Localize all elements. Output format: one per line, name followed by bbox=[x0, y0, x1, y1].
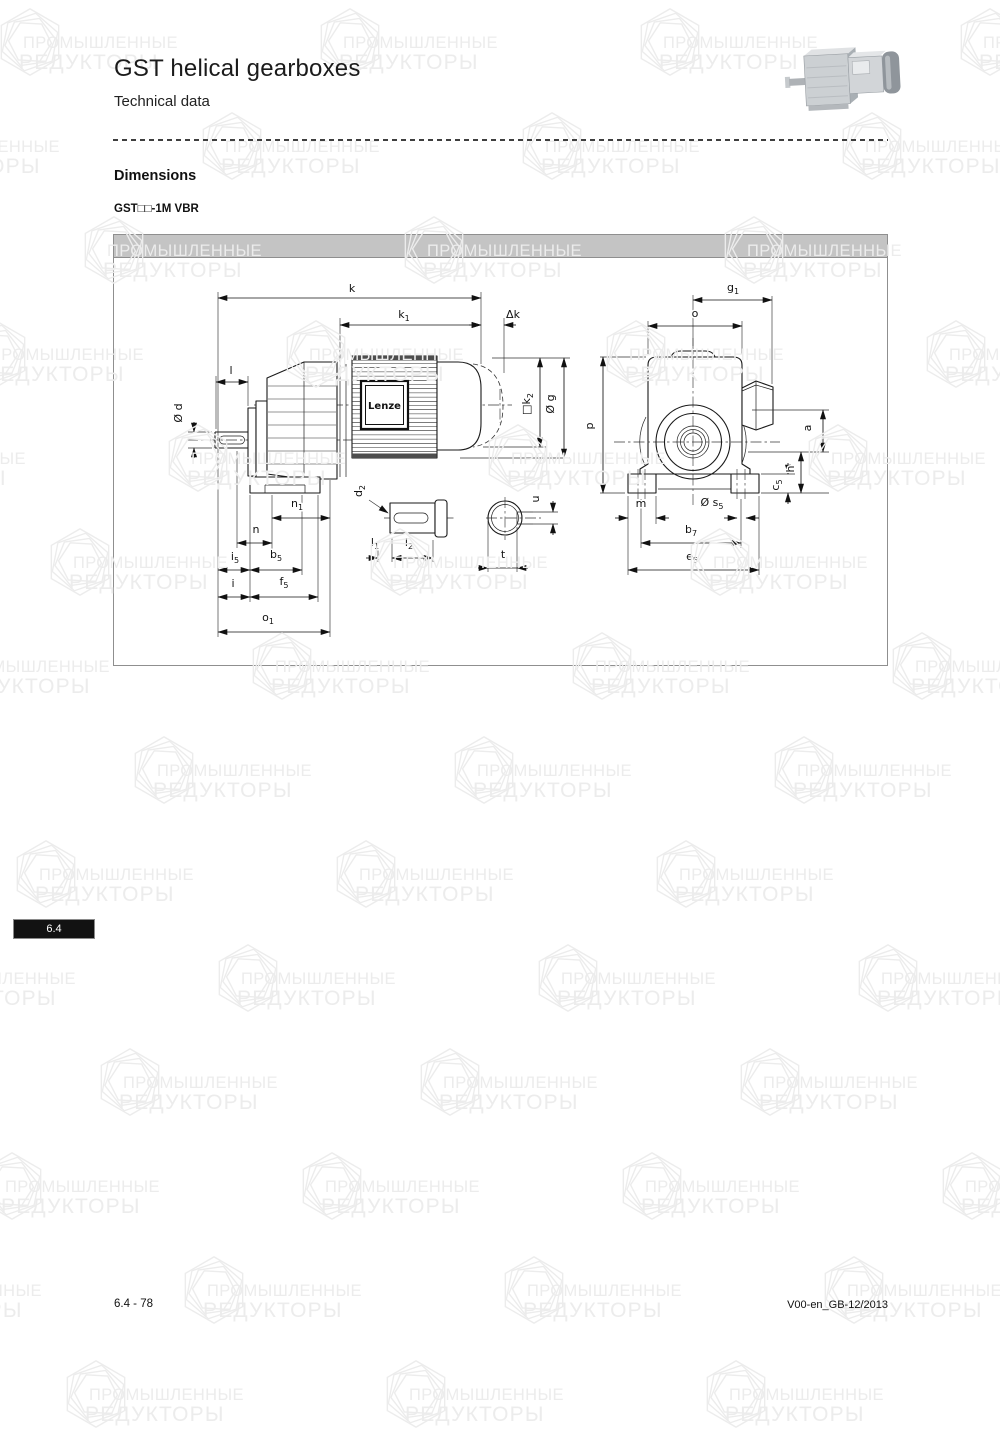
page: { "page": { "title": "GST helical gearbo… bbox=[0, 0, 1000, 1395]
dim-label-p: p bbox=[583, 422, 596, 429]
key-detail bbox=[369, 500, 455, 537]
dim-label-t: t bbox=[501, 548, 506, 561]
dim-label-k: k bbox=[349, 282, 356, 295]
dim-label-o1: o1 bbox=[262, 611, 274, 626]
dim-label-l: l bbox=[229, 364, 232, 377]
dim-label-k2: □k2 bbox=[520, 393, 535, 415]
dim-label-g: Ø g bbox=[544, 394, 557, 413]
gearbox-housing bbox=[267, 362, 337, 479]
front-housing bbox=[640, 357, 750, 474]
dim-label-f5: f5 bbox=[280, 575, 289, 590]
watermark-text-line2: РЕДУКТОРЫ bbox=[85, 1403, 225, 1427]
dim-label-o: o bbox=[692, 307, 699, 320]
d2-leader-line bbox=[369, 500, 388, 513]
technical-drawing: Lenze bbox=[113, 234, 888, 666]
dim-label-i: i bbox=[231, 577, 234, 590]
product-photo bbox=[783, 38, 928, 120]
shaft bbox=[789, 78, 807, 86]
flange-plate-1 bbox=[248, 408, 256, 476]
dim-label-h: h bbox=[784, 465, 797, 472]
foot-left bbox=[628, 474, 656, 493]
fan-cover bbox=[437, 362, 481, 450]
dim-label-n: n bbox=[253, 523, 260, 536]
shaft-collar bbox=[435, 500, 447, 537]
dim-label-u: u bbox=[529, 496, 542, 503]
motor-bottom-band bbox=[352, 454, 437, 459]
dim-label-n1: n1 bbox=[291, 497, 303, 512]
dim-label-l2: l2 bbox=[405, 536, 413, 551]
side-view: Lenze bbox=[187, 356, 512, 493]
flange-plate-2 bbox=[256, 401, 267, 483]
front-view bbox=[614, 338, 780, 505]
terminal-box-photo bbox=[852, 61, 870, 75]
dim-label-a: a bbox=[801, 425, 814, 432]
motor-top-band bbox=[352, 356, 437, 361]
watermark-text-line2: РЕДУКТОРЫ bbox=[725, 1403, 865, 1427]
dim-label-b5: b5 bbox=[270, 548, 282, 563]
dim-label-k1: k1 bbox=[398, 308, 409, 323]
dim-label-c5: c5 bbox=[769, 479, 784, 490]
dim-label-b7: b7 bbox=[685, 523, 697, 538]
brand-label: Lenze bbox=[368, 401, 401, 412]
dim-label-delta-k: Δk bbox=[506, 308, 521, 321]
dim-label-d2: d2 bbox=[352, 485, 367, 497]
gearbox-render bbox=[784, 45, 902, 112]
dim-label-g1: g1 bbox=[727, 281, 739, 296]
dim-label-m: m bbox=[636, 497, 647, 510]
motor-adapter bbox=[340, 364, 346, 477]
art-layer: Lenze bbox=[0, 0, 1000, 1395]
dim-label-l1: l1 bbox=[371, 536, 379, 551]
watermark-text-line2: РЕДУКТОРЫ bbox=[405, 1403, 545, 1427]
dim-label-s5: Ø s5 bbox=[701, 496, 724, 511]
dim-label-d: Ø d bbox=[172, 403, 185, 422]
dim-label-i5: i5 bbox=[231, 550, 239, 565]
dim-label-e5: e5 bbox=[686, 550, 698, 565]
